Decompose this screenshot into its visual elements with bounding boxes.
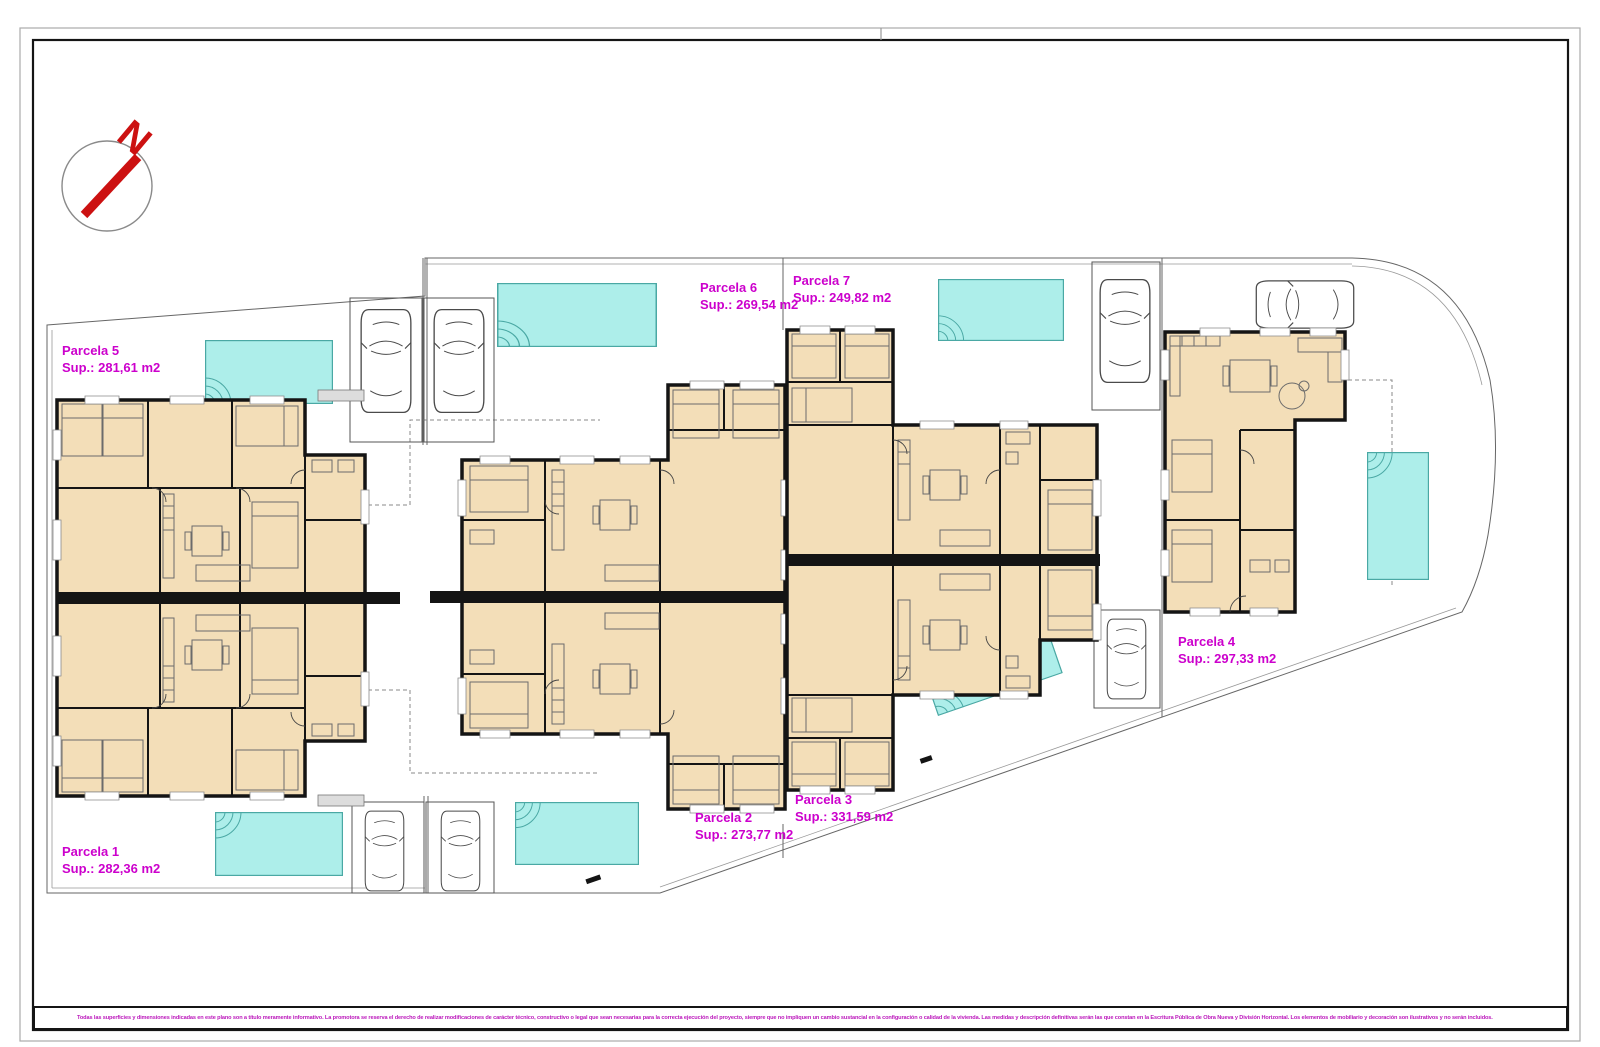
building-duplex-right: [787, 326, 1101, 794]
pool-parcela-7: [938, 279, 1064, 341]
parcel-1-area: Sup.: 282,36 m2: [62, 861, 160, 876]
parcel-label-5: Parcela 5 Sup.: 281,61 m2: [62, 343, 160, 375]
car: [1256, 281, 1353, 328]
north-compass-icon: N: [62, 112, 160, 231]
footer-disclaimer-strip: Todas las superficies y dimensiones indi…: [33, 1006, 1568, 1030]
parcel-5-name: Parcela 5: [62, 343, 119, 358]
car: [434, 310, 484, 413]
pool-parcela-1: [215, 812, 343, 876]
parcel-7-name: Parcela 7: [793, 273, 850, 288]
building-duplex-middle: [430, 381, 789, 813]
pool-parcela-4: [1367, 452, 1429, 580]
parcel-4-name: Parcela 4: [1178, 634, 1236, 649]
disclaimer-text: Todas las superficies y dimensiones indi…: [77, 1015, 1493, 1021]
parcel-2-name: Parcela 2: [695, 810, 752, 825]
parcel-5-area: Sup.: 281,61 m2: [62, 360, 160, 375]
parcel-label-6: Parcela 6 Sup.: 269,54 m2: [700, 280, 798, 312]
parcel-label-7: Parcela 7 Sup.: 249,82 m2: [793, 273, 891, 305]
parcel-7-area: Sup.: 249,82 m2: [793, 290, 891, 305]
car: [1107, 619, 1146, 699]
compass-north-label: N: [109, 112, 159, 164]
site-plan-drawing: N: [0, 0, 1600, 1047]
parcel-4-area: Sup.: 297,33 m2: [1178, 651, 1276, 666]
parcel-6-name: Parcela 6: [700, 280, 757, 295]
parcel-3-area: Sup.: 331,59 m2: [795, 809, 893, 824]
car: [1100, 280, 1150, 383]
site-plan-page: N: [0, 0, 1600, 1047]
pool-parcela-5: [205, 341, 333, 405]
car: [361, 310, 411, 413]
parcel-label-3: Parcela 3 Sup.: 331,59 m2: [795, 792, 893, 824]
pool-parcela-6: [497, 284, 656, 348]
parcel-6-area: Sup.: 269,54 m2: [700, 297, 798, 312]
parcel-3-name: Parcela 3: [795, 792, 852, 807]
car: [365, 811, 404, 891]
parcel-label-1: Parcela 1 Sup.: 282,36 m2: [62, 844, 160, 876]
parcel-2-area: Sup.: 273,77 m2: [695, 827, 793, 842]
parcel-label-2: Parcela 2 Sup.: 273,77 m2: [695, 810, 793, 842]
building-villa: [1161, 328, 1349, 616]
parcel-label-4: Parcela 4 Sup.: 297,33 m2: [1178, 634, 1276, 666]
building-duplex-left: [53, 390, 400, 806]
car: [441, 811, 480, 891]
parcel-1-name: Parcela 1: [62, 844, 119, 859]
pool-parcela-2: [515, 802, 639, 865]
